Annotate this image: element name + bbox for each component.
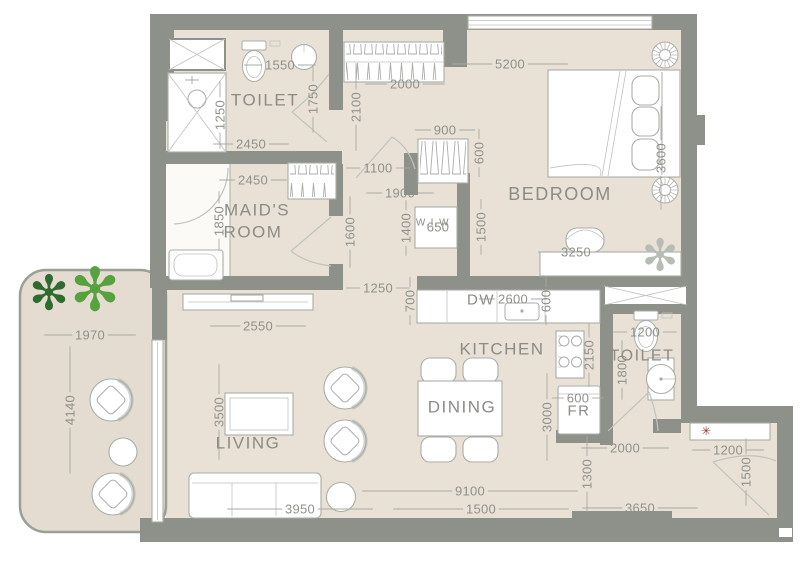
armchair-icon <box>324 420 366 462</box>
dim-label-d1200_toilet: 1200 <box>630 325 660 340</box>
room-label-toilet_entry: TOILET <box>610 348 675 365</box>
dim-label-d1250_shower: 1250 <box>213 100 228 130</box>
pillow <box>632 107 659 136</box>
room-label-fridge: FR <box>568 403 591 420</box>
dim-label-d900: 900 <box>434 123 457 138</box>
shaft-bedroom <box>604 286 687 305</box>
dim-label-d2450_toilet: 2450 <box>236 137 266 152</box>
dim-label-d3600: 3600 <box>654 143 669 173</box>
dim-label-d600_kitchen: 600 <box>539 290 554 313</box>
dim-label-d1500_entry: 1500 <box>739 457 754 487</box>
room-label-wiw: W.I.W <box>416 218 450 229</box>
room-label-bedroom: BEDROOM <box>508 184 612 204</box>
floor-plan-page: ✳ <box>0 0 800 562</box>
coffee-table <box>225 393 293 435</box>
ceiling-fan-icon <box>652 177 678 203</box>
balcony-chair-icon <box>90 379 132 421</box>
floor-plan-drawing: ✳ <box>0 0 800 562</box>
plant-icon: ✻ <box>70 257 120 324</box>
dim-label-d2100: 2100 <box>349 92 364 122</box>
dim-label-d9100: 9100 <box>455 484 485 499</box>
bedroom-window <box>468 16 652 29</box>
room-label-dining: DINING <box>428 398 497 417</box>
dining-chair <box>463 437 498 462</box>
room-label-maids_line2: ROOM <box>224 223 283 242</box>
wardrobe-900 <box>418 139 468 183</box>
dim-label-d5200: 5200 <box>495 57 525 72</box>
dim-label-d3650: 3650 <box>625 501 655 516</box>
entry-niche: ✳ <box>690 423 770 440</box>
room-label-toilet_top: TOILET <box>231 91 299 110</box>
plant-icon: ✻ <box>642 232 679 281</box>
room-label-maids_line1: MAID'S <box>224 201 290 220</box>
balcony-table-icon <box>109 438 137 466</box>
dining-chair <box>421 437 456 462</box>
dim-label-d1970: 1970 <box>75 328 105 343</box>
dim-label-d2000_closet: 2000 <box>390 77 420 92</box>
dim-label-d1100: 1100 <box>363 161 392 176</box>
dim-label-d1600: 1600 <box>343 217 358 247</box>
dim-label-d1750: 1750 <box>306 84 321 114</box>
dim-label-d1500_wiw: 1500 <box>474 212 489 242</box>
dim-label-d1900: 1900 <box>385 186 415 201</box>
dim-label-d4140: 4140 <box>63 395 78 425</box>
dim-label-d1400: 1400 <box>399 213 414 243</box>
room-label-kitchen: KITCHEN <box>459 340 544 359</box>
room-label-living: LIVING <box>216 434 281 453</box>
dim-label-d3250: 3250 <box>561 245 591 260</box>
dim-label-d3000: 3000 <box>540 402 555 432</box>
dim-label-d1500_overall: 1500 <box>466 502 496 517</box>
pillow <box>632 76 659 105</box>
ceiling-fan-icon <box>652 42 678 68</box>
side-table-icon <box>327 483 356 512</box>
dim-label-d2000_entry: 2000 <box>610 441 640 456</box>
dining-chair <box>421 358 456 383</box>
tv-console <box>183 294 313 310</box>
dim-label-d1300: 1300 <box>580 459 595 489</box>
balcony-sliding-door <box>152 340 163 522</box>
dim-label-d2550: 2550 <box>243 319 273 334</box>
shaft-top-left <box>169 39 225 70</box>
dim-label-d2150: 2150 <box>582 340 597 370</box>
dim-label-d1250_hall: 1250 <box>363 281 393 296</box>
bathtub <box>169 250 223 280</box>
plant-icon: ✻ <box>29 268 69 321</box>
dim-label-d2600: 2600 <box>498 292 528 307</box>
tv <box>231 295 263 301</box>
balcony-chair-icon <box>92 473 134 515</box>
wc-icon <box>242 41 266 82</box>
dim-label-d600_wardrobe: 600 <box>472 142 487 165</box>
sprinkler-icon: ✳ <box>701 424 711 438</box>
dim-label-d3950: 3950 <box>285 502 315 517</box>
stove <box>556 331 584 378</box>
dining-chair <box>463 358 498 383</box>
dim-label-d3500: 3500 <box>212 397 227 427</box>
dim-label-d2450_maids: 2450 <box>238 173 268 188</box>
dim-label-d1200_entry: 1200 <box>713 443 743 458</box>
armchair-icon <box>324 367 366 409</box>
dim-label-d700: 700 <box>403 290 418 313</box>
maids-wardrobe <box>288 163 336 199</box>
dim-label-d1550: 1550 <box>265 58 295 73</box>
room-label-dishwasher: DW <box>467 292 495 309</box>
